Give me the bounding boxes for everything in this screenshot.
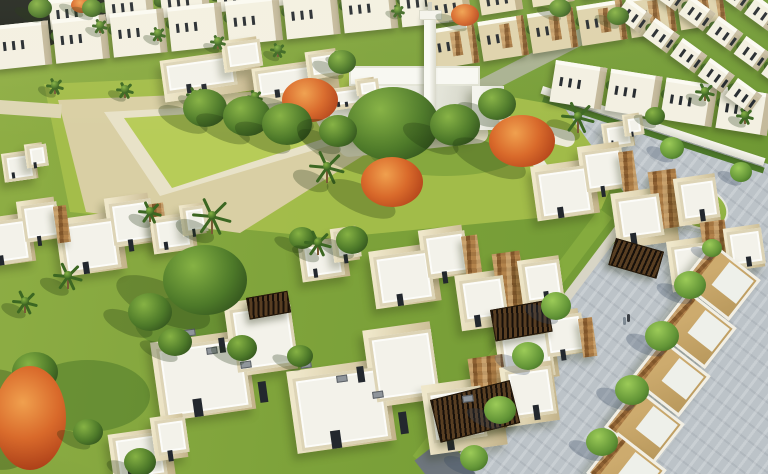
tree-foliage (28, 0, 52, 18)
row-house-window (407, 0, 411, 9)
row-house-window (127, 29, 131, 38)
row-house (0, 20, 52, 69)
row-house-window (56, 10, 60, 19)
row-house-window (60, 36, 64, 45)
tree-foliage (287, 345, 313, 367)
palm-crown (574, 112, 582, 120)
row-house-window (623, 87, 627, 96)
palm-tree (696, 86, 714, 104)
row-house-window (614, 86, 618, 95)
tree-foliage (484, 396, 516, 424)
villa-win (258, 381, 269, 403)
palm-crown (121, 85, 129, 93)
row-house-window (760, 12, 768, 21)
tree-foliage (82, 0, 102, 17)
green-tree (549, 0, 571, 17)
row-house-stone-panel (499, 23, 513, 48)
render-canvas (0, 0, 768, 474)
tree-foliage (227, 335, 257, 361)
row-house-window (121, 3, 125, 12)
tree-foliage (163, 245, 247, 315)
row-house-window (185, 23, 189, 32)
pedestrian (627, 314, 630, 322)
palm-tree (392, 6, 404, 18)
flowering-tree (0, 366, 66, 470)
tree-foliage (730, 162, 752, 182)
row-house-window (194, 22, 198, 31)
palm-crown (51, 81, 59, 89)
row-house-window (651, 29, 659, 38)
row-house-window (446, 42, 450, 51)
row-house-window (242, 17, 246, 26)
row-house-window (715, 27, 723, 36)
row-house-window (136, 28, 140, 37)
tree-foliage (489, 115, 555, 167)
green-tree (328, 50, 356, 74)
flowering-tree (489, 115, 555, 167)
palm-tree (14, 294, 36, 316)
street-tree (512, 342, 544, 370)
row-house-window (687, 7, 695, 16)
row-house (477, 15, 529, 62)
green-tree (158, 328, 192, 356)
green-tree (607, 7, 629, 25)
street-tree (674, 271, 706, 299)
palm-tree (117, 84, 133, 100)
green-tree (124, 448, 156, 474)
palm-tree (211, 37, 225, 51)
row-house-window (495, 0, 499, 5)
row-house-window (694, 12, 702, 21)
green-tree (82, 0, 102, 17)
villa-roof (615, 193, 664, 241)
row-house-window (78, 34, 82, 43)
street-tree (660, 137, 684, 159)
row-house-window (504, 0, 508, 4)
row-house-window (118, 30, 122, 39)
tree-foliage (0, 366, 66, 470)
tree-foliage (541, 292, 571, 320)
row-house-window (300, 11, 304, 20)
row-house (477, 0, 523, 16)
tree-foliage (674, 271, 706, 299)
tree-foliage (702, 239, 722, 257)
tree-foliage (73, 419, 103, 445)
tree-foliage (615, 375, 649, 405)
row-house-sidewall (512, 0, 523, 10)
palm-crown (741, 111, 749, 119)
street-tree (645, 321, 679, 351)
palm-tree (151, 29, 165, 43)
row-house-window (12, 41, 16, 50)
tree-foliage (158, 328, 192, 356)
row-house-window (753, 7, 761, 16)
row-house (282, 0, 340, 39)
tree-foliage (645, 107, 665, 125)
tree-foliage (645, 321, 679, 351)
palm-tree (55, 267, 81, 293)
villa-win (398, 412, 409, 435)
row-house-window (559, 77, 563, 86)
row-house-window (496, 34, 500, 43)
row-house-window (251, 16, 255, 25)
street-tree (586, 428, 618, 456)
row-house-window (437, 43, 441, 52)
row-house-window (536, 28, 540, 37)
row-house-window (585, 20, 589, 29)
tree-foliage (124, 448, 156, 474)
row-house-window (545, 26, 549, 35)
row-house-window (358, 5, 362, 14)
flowering-tree (451, 4, 479, 26)
row-house-window (3, 42, 7, 51)
tree-foliage (660, 137, 684, 159)
row-house-window (309, 10, 313, 19)
palm-tree (306, 235, 330, 259)
row-house (549, 60, 607, 110)
row-house-window (741, 94, 749, 103)
green-tree (28, 0, 52, 18)
row-house-window (130, 2, 134, 11)
palm-tree (195, 205, 229, 239)
green-tree (287, 345, 313, 367)
row-house-window (112, 4, 116, 13)
tree-foliage (361, 157, 423, 207)
row-house-window (658, 34, 666, 43)
aerial-community-render (0, 0, 768, 474)
tree-foliage (512, 342, 544, 370)
row-house-window (444, 4, 448, 13)
street-tree (541, 292, 571, 320)
row-house-window (686, 54, 694, 63)
row-house-window (415, 0, 419, 8)
green-tree (128, 293, 172, 331)
palm-crown (146, 207, 154, 215)
tree-foliage (128, 293, 172, 331)
row-house-window (577, 80, 581, 89)
row-house-window (679, 49, 687, 58)
green-tree (227, 335, 257, 361)
villa-win (275, 89, 281, 98)
row-house-stone-panel (450, 31, 464, 56)
street-tree (730, 162, 752, 182)
mosque-minaret-finial (428, 2, 432, 11)
green-tree (336, 226, 368, 254)
row-house-window (632, 88, 636, 97)
row-house-window (734, 89, 742, 98)
row-house-window (487, 35, 491, 44)
tree-foliage (328, 50, 356, 74)
tree-foliage (549, 0, 571, 17)
row-house-window (706, 69, 714, 78)
tree-foliage (607, 7, 629, 25)
green-tree (319, 115, 357, 147)
palm-tree (563, 107, 593, 137)
street-tree (484, 396, 516, 424)
palm-crown (394, 6, 402, 14)
row-house-roofline (225, 0, 279, 6)
row-house-window (568, 78, 572, 87)
row-house-sidewall (41, 20, 53, 64)
palm-tree (737, 110, 753, 126)
row-house-window (713, 74, 721, 83)
row-house-window (722, 32, 730, 41)
palm-crown (323, 162, 331, 170)
row-house-window (679, 96, 683, 105)
tree-foliage (451, 4, 479, 26)
street-tree (615, 375, 649, 405)
tree-foliage (460, 445, 488, 471)
tree-foliage (586, 428, 618, 456)
street-tree (702, 239, 722, 257)
villa-roof (677, 177, 720, 222)
row-house-window (233, 18, 237, 27)
villa-win (12, 173, 16, 179)
row-house-window (631, 14, 639, 23)
row-house-window (670, 94, 674, 103)
row-house-window (69, 35, 73, 44)
palm-tree (47, 80, 63, 96)
villa-roof (26, 144, 48, 168)
palm-crown (64, 271, 72, 279)
row-house-window (749, 52, 757, 61)
row-house-window (486, 0, 490, 7)
palm-tree (271, 45, 285, 59)
row-house-window (291, 12, 295, 21)
row-house-window (21, 40, 25, 49)
green-tree (163, 245, 247, 315)
street-tree (460, 445, 488, 471)
palm-tree (93, 21, 107, 35)
flowering-tree (361, 157, 423, 207)
row-house-window (349, 5, 353, 14)
tree-foliage (319, 115, 357, 147)
green-tree (73, 419, 103, 445)
tree-foliage (336, 226, 368, 254)
row-house-window (176, 24, 180, 33)
palm-tree (140, 205, 160, 225)
row-house-window (742, 47, 750, 56)
green-tree (645, 107, 665, 125)
left-path (0, 100, 62, 118)
row-house-window (367, 4, 371, 13)
palm-crown (21, 297, 29, 305)
